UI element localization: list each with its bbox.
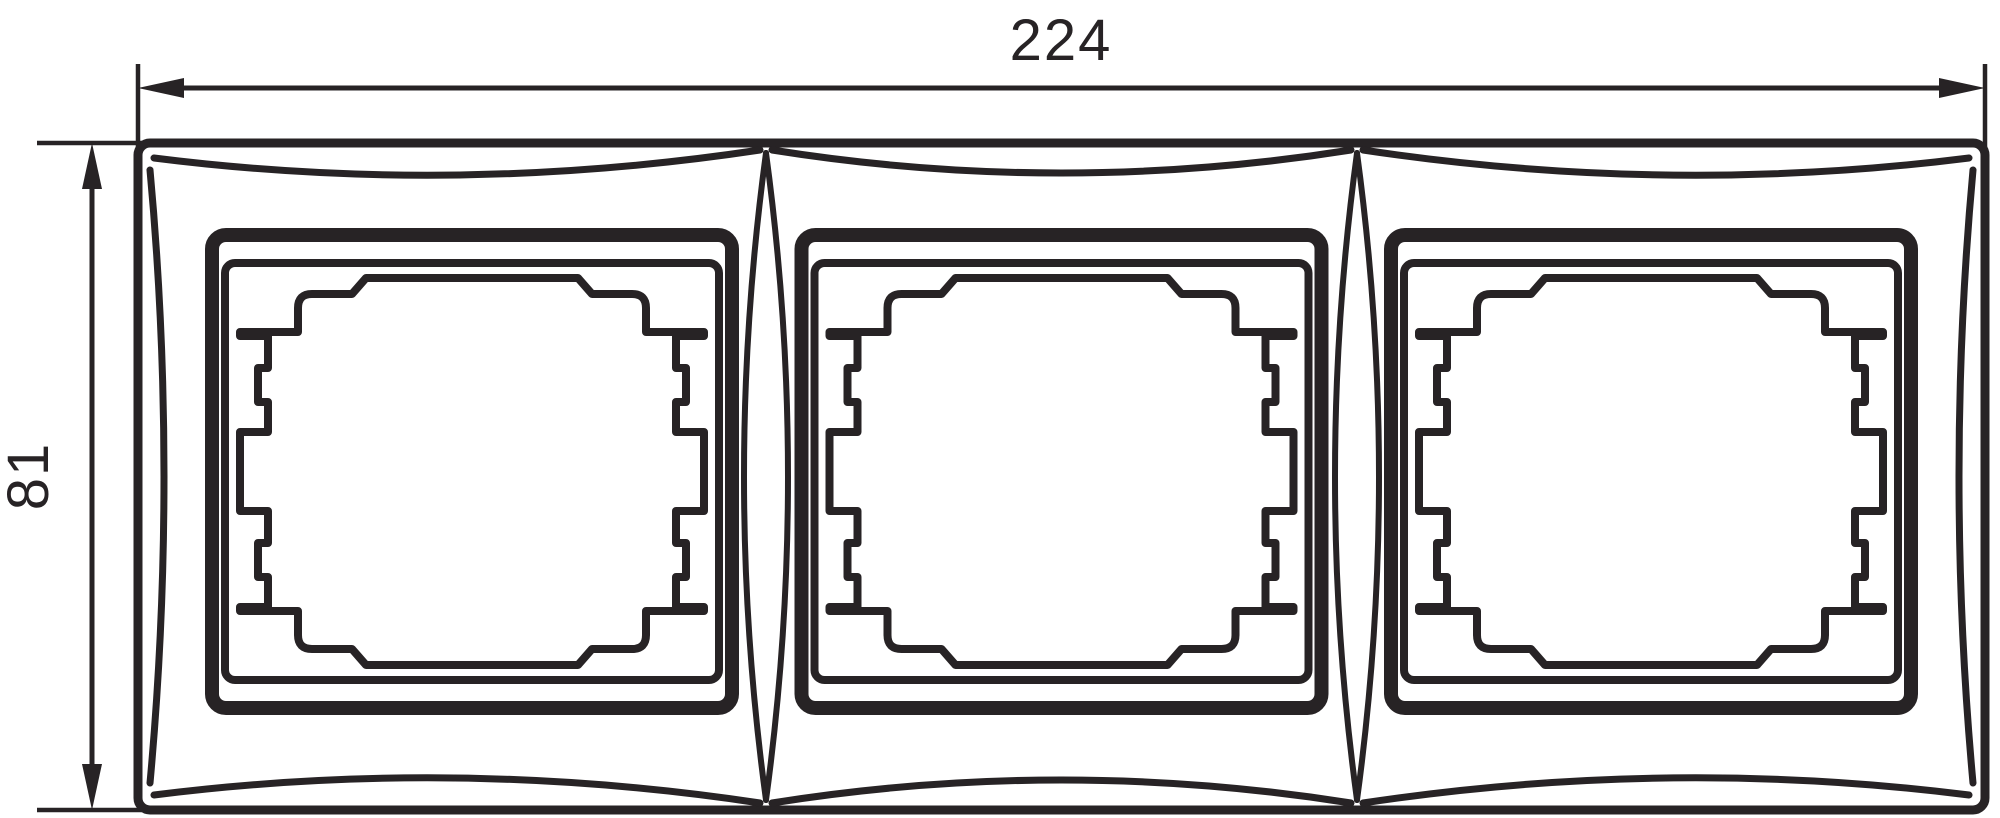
width-dimension: 224: [138, 8, 1985, 148]
module-window-2: [802, 235, 1322, 708]
pillow-top-curve-module-3: [1363, 150, 1969, 175]
width-arrow-left: [138, 78, 184, 98]
pillow-side-curve-right: [1959, 170, 1973, 783]
seam-curve-right: [766, 153, 788, 800]
height-arrow-bottom: [82, 764, 102, 810]
height-dimension-label: 81: [0, 442, 61, 511]
pillow-top-curve-module-2: [772, 150, 1351, 173]
seam-curve-left: [744, 153, 766, 800]
module-window-1: [212, 235, 732, 708]
pillow-bottom-curve-module-1: [154, 778, 760, 803]
width-arrow-right: [1939, 78, 1985, 98]
module-window-3: [1391, 235, 1911, 708]
frame-technical-drawing: 224 81: [0, 0, 2000, 818]
drawing-canvas: 224 81: [0, 0, 2000, 818]
window-modules: [212, 235, 1911, 708]
pillow-bottom-curve-module-2: [772, 780, 1351, 803]
pillow-side-curve-left: [150, 170, 164, 783]
pillow-bottom-curve-module-3: [1363, 778, 1969, 803]
height-dimension: 81: [0, 143, 148, 810]
pillow-top-curve-module-1: [154, 150, 760, 175]
seam-curve-left: [1335, 153, 1357, 800]
module-seam-1: [744, 153, 788, 800]
height-arrow-top: [82, 143, 102, 189]
module-seam-2: [1335, 153, 1379, 800]
seam-curve-right: [1357, 153, 1379, 800]
width-dimension-label: 224: [1010, 8, 1113, 73]
